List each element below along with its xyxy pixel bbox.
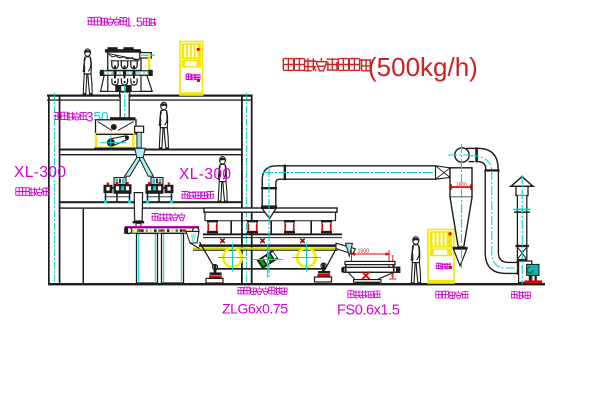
svg-text:3: 3	[86, 110, 94, 125]
svg-text:XL-300: XL-300	[14, 164, 66, 181]
svg-text:1.5: 1.5	[125, 15, 143, 30]
svg-text:ZLG6x0.75: ZLG6x0.75	[222, 301, 288, 317]
svg-text:FS0.6x1.5: FS0.6x1.5	[337, 303, 400, 319]
svg-text:XL-300: XL-300	[179, 166, 231, 183]
svg-text:(500kg/h): (500kg/h)	[368, 52, 478, 82]
svg-text:1500: 1500	[358, 248, 370, 254]
